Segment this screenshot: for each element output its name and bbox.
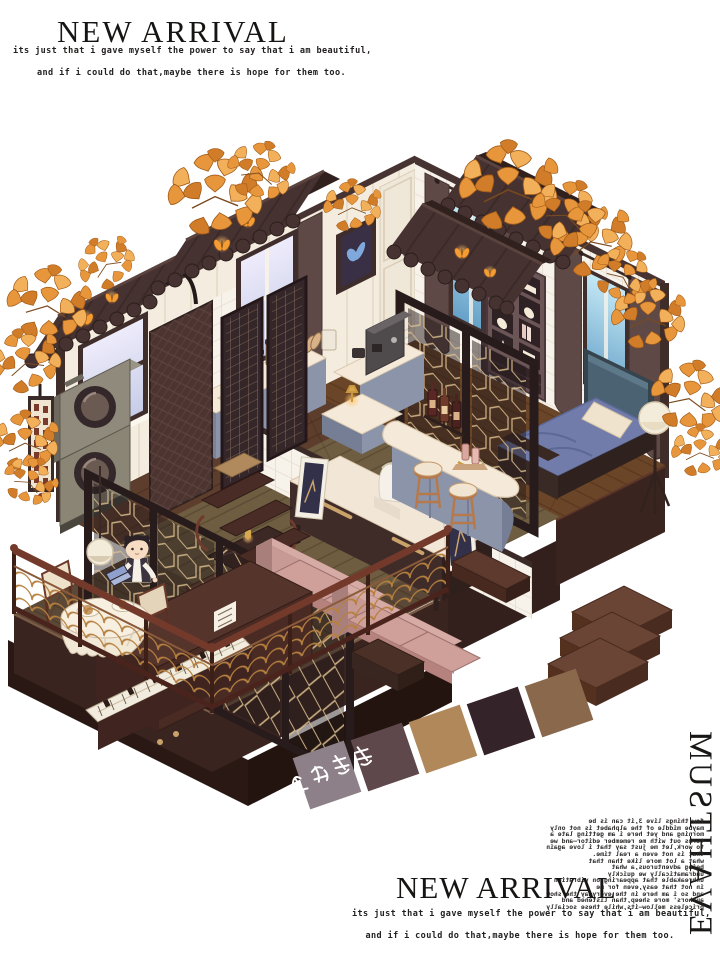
footer-subtitle-1: its just that i gave myself the power to… — [352, 909, 688, 919]
poster: NEW ARRIVAL its just that i gave myself … — [0, 0, 720, 960]
toaster — [352, 348, 365, 358]
art-frame-1 — [295, 457, 328, 519]
footer-subtitle-2: and if i could do that,maybe there is ho… — [352, 931, 688, 941]
isometric-room-illustration: .c1{fill:#e8963c}.c2{fill:#f3b05a}.c3{fi… — [0, 0, 720, 960]
palette-swatch-4 — [467, 687, 536, 756]
footer-title: NEW ARRIVAL — [396, 870, 617, 906]
lattice-door-2 — [268, 277, 306, 460]
